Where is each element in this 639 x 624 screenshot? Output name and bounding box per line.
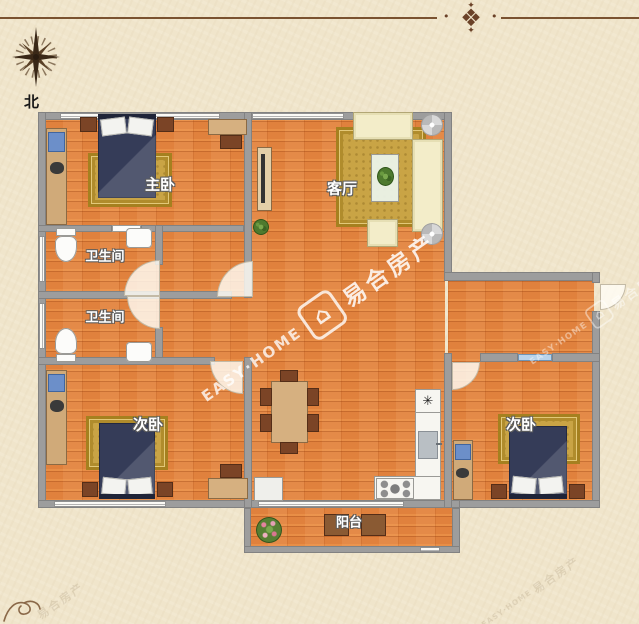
room-label-master-bedroom: 主卧 xyxy=(145,174,175,195)
north-label: 北 xyxy=(24,91,39,112)
wall xyxy=(592,311,600,508)
dining-chair xyxy=(260,388,272,406)
window xyxy=(258,501,404,507)
kitchen-sink xyxy=(418,431,438,459)
wall xyxy=(444,500,600,508)
nightstand xyxy=(82,482,98,497)
desk-chair xyxy=(220,135,242,149)
pillow xyxy=(538,476,564,495)
nightstand xyxy=(491,484,507,499)
wall xyxy=(444,272,600,281)
top-border-line-right xyxy=(501,17,639,19)
compass-icon xyxy=(8,25,64,89)
room-label-bedroom-right: 次卧 xyxy=(506,414,536,435)
desk xyxy=(208,478,248,499)
pillow xyxy=(511,476,537,495)
toilet-bowl xyxy=(55,328,77,354)
wall xyxy=(444,353,452,508)
wardrobe-item xyxy=(456,468,469,478)
ornament-spark-top: ✦ xyxy=(467,1,475,11)
toilet-tank xyxy=(56,228,76,236)
plant-icon xyxy=(421,114,443,136)
nightstand xyxy=(157,117,174,132)
loveseat-sofa xyxy=(353,112,413,140)
stove xyxy=(376,478,414,499)
washing-machine xyxy=(254,477,283,501)
headboard xyxy=(509,494,567,499)
pillow xyxy=(100,117,127,137)
room-label-balcony: 阳台 xyxy=(336,512,362,531)
balcony-bench xyxy=(361,514,386,536)
toilet-tank xyxy=(56,354,76,362)
ornament-dot-left: • xyxy=(443,14,450,20)
wardrobe-item xyxy=(50,400,64,412)
desk-chair xyxy=(220,464,242,478)
floor-plan-canvas: • • ❖ ✦ ✦ 北 xyxy=(0,0,639,624)
window xyxy=(420,547,440,552)
headboard xyxy=(99,494,155,499)
faucet xyxy=(436,443,442,445)
dining-chair xyxy=(280,442,298,454)
window xyxy=(252,113,344,119)
room-label-bedroom-left: 次卧 xyxy=(133,414,163,435)
ornament-spark-bottom: ✦ xyxy=(467,26,475,36)
window xyxy=(54,501,166,507)
bedding-box xyxy=(48,132,65,152)
refrigerator: ✳ xyxy=(415,389,441,413)
room-label-living-room: 客厅 xyxy=(327,178,357,199)
watermark: EASY·HOME 易合房产 xyxy=(477,552,582,624)
wardrobe-item xyxy=(50,162,64,174)
sink xyxy=(126,228,152,248)
nightstand xyxy=(157,482,173,497)
tv xyxy=(261,154,265,203)
desk xyxy=(208,119,247,135)
nightstand xyxy=(80,117,97,132)
ornament-dot-right: • xyxy=(491,14,498,20)
dining-chair xyxy=(307,388,319,406)
sink xyxy=(126,342,152,362)
fridge-glyph: ✳ xyxy=(423,394,434,409)
top-border-line-left xyxy=(0,17,437,19)
dining-table xyxy=(271,381,308,443)
room-label-bathroom-bottom: 卫生间 xyxy=(85,307,124,326)
watermark-cn: 易合房产 xyxy=(529,552,583,597)
nightstand xyxy=(569,484,585,499)
watermark-en: EASY·HOME xyxy=(480,588,533,624)
dining-chair xyxy=(260,414,272,432)
plant-icon xyxy=(253,219,269,235)
dining-chair xyxy=(280,370,298,382)
dining-chair xyxy=(307,414,319,432)
plant-icon xyxy=(377,167,394,186)
wall xyxy=(155,225,163,265)
pillow xyxy=(127,117,154,137)
wall xyxy=(444,112,452,280)
bedding-box xyxy=(48,374,65,392)
long-sofa xyxy=(412,139,443,232)
flourish-icon xyxy=(2,597,42,623)
window xyxy=(39,236,45,282)
wall xyxy=(592,272,600,283)
wall xyxy=(480,353,518,362)
room-label-bathroom-top: 卫生间 xyxy=(85,246,124,265)
window xyxy=(39,303,45,349)
bedding-box xyxy=(455,444,471,460)
flower-plant-icon xyxy=(256,517,282,543)
